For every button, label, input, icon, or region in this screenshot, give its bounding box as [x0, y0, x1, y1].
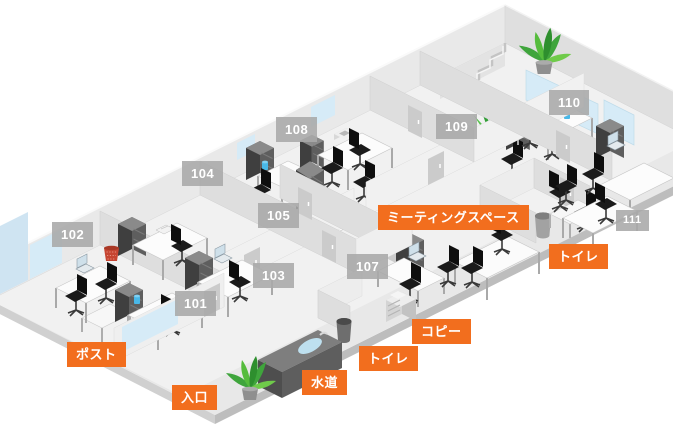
room-label-110[interactable]: 110	[549, 90, 589, 115]
facility-label-toilet-south[interactable]: トイレ	[359, 346, 418, 371]
room-label-103[interactable]: 103	[253, 263, 294, 288]
room-label-102[interactable]: 102	[52, 222, 93, 247]
red-mesh-basket	[104, 246, 119, 261]
facility-label-toilet-east[interactable]: トイレ	[549, 244, 608, 269]
facility-label-post[interactable]: ポスト	[67, 342, 126, 367]
facility-label-meeting-space[interactable]: ミーティングスペース	[378, 205, 529, 230]
room-label-107[interactable]: 107	[347, 254, 388, 279]
water-cup	[134, 295, 140, 304]
facility-label-water[interactable]: 水道	[302, 370, 347, 395]
room-label-104[interactable]: 104	[182, 161, 223, 186]
facility-label-copy[interactable]: コピー	[412, 319, 471, 344]
trash-can	[535, 212, 551, 238]
water-cup	[262, 161, 268, 170]
office-floor-map: 101102103104105107108109110111ミーティングスペース…	[0, 0, 673, 428]
room-label-109[interactable]: 109	[436, 114, 477, 139]
room-label-105[interactable]: 105	[258, 203, 299, 228]
room-label-111[interactable]: 111	[616, 210, 649, 231]
room-label-108[interactable]: 108	[276, 117, 317, 142]
facility-label-entrance[interactable]: 入口	[172, 385, 217, 410]
trash-can	[337, 318, 352, 343]
room-label-101[interactable]: 101	[175, 291, 216, 316]
